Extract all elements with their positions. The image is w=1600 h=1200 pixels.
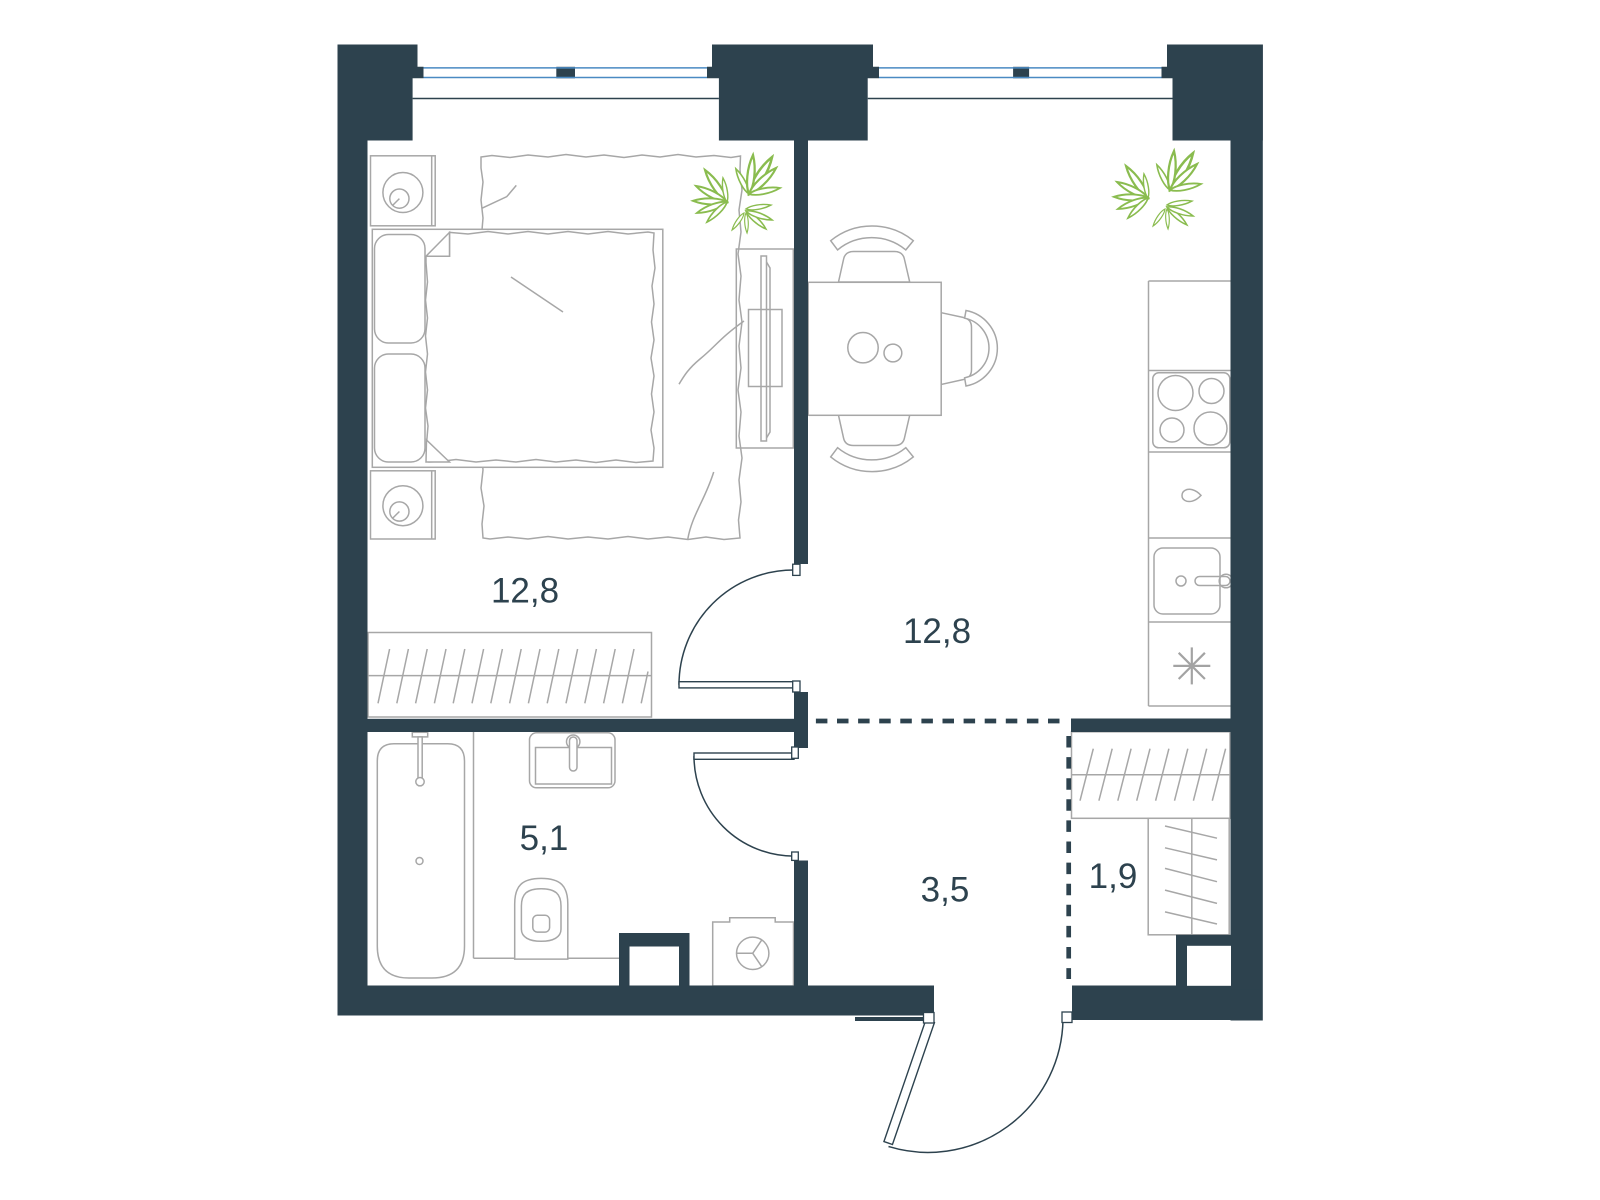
svg-text:5,1: 5,1	[520, 819, 569, 858]
svg-text:1,9: 1,9	[1089, 857, 1138, 896]
svg-text:3,5: 3,5	[921, 871, 970, 910]
svg-text:12,8: 12,8	[903, 612, 971, 651]
svg-text:12,8: 12,8	[491, 572, 559, 611]
